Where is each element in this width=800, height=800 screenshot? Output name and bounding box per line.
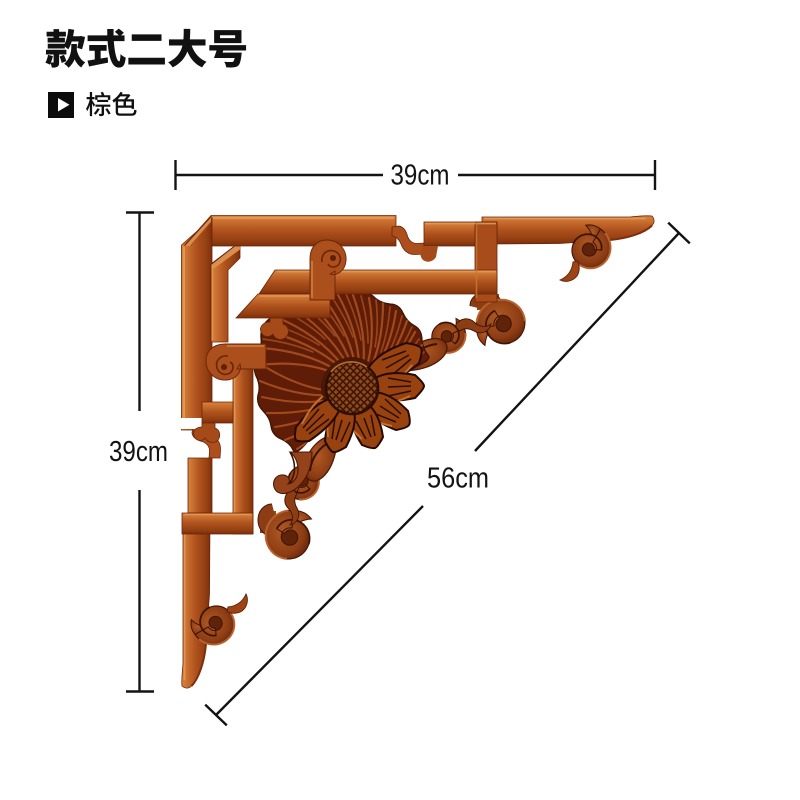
svg-text:39cm: 39cm (109, 436, 168, 468)
svg-text:39cm: 39cm (391, 160, 450, 192)
svg-text:56cm: 56cm (427, 463, 489, 495)
